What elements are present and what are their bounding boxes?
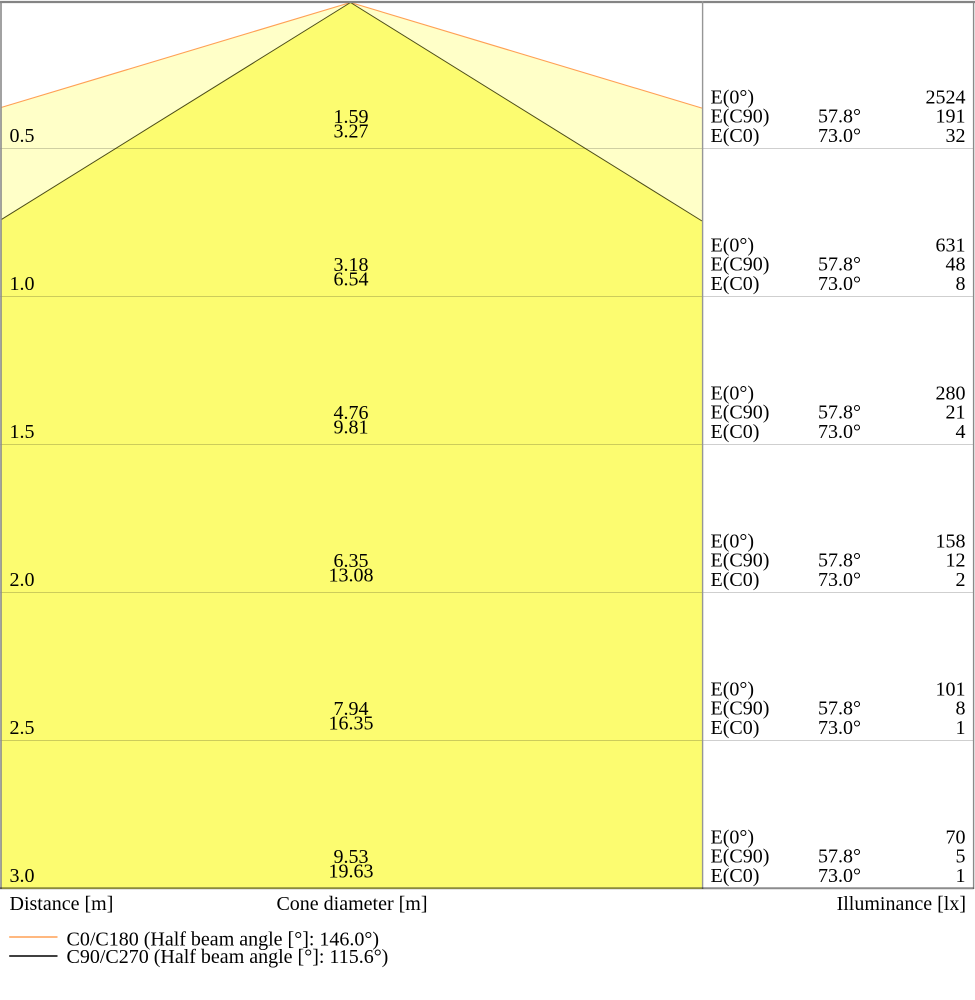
svg-text:E(C0): E(C0): [711, 569, 760, 591]
svg-text:73.0°: 73.0°: [818, 569, 861, 591]
svg-text:6.54: 6.54: [334, 269, 369, 291]
svg-text:2.5: 2.5: [10, 717, 35, 739]
svg-text:E(C0): E(C0): [711, 273, 760, 295]
svg-text:2.0: 2.0: [10, 569, 35, 591]
svg-text:E(C0): E(C0): [711, 865, 760, 887]
svg-text:16.35: 16.35: [329, 713, 374, 735]
svg-text:1: 1: [956, 717, 966, 739]
svg-text:73.0°: 73.0°: [818, 717, 861, 739]
svg-text:1: 1: [956, 865, 966, 887]
svg-text:Distance [m]: Distance [m]: [10, 893, 114, 915]
svg-text:E(C0): E(C0): [711, 125, 760, 147]
svg-text:E(C0): E(C0): [711, 717, 760, 739]
svg-text:32: 32: [946, 125, 966, 147]
svg-text:0.5: 0.5: [10, 125, 35, 147]
svg-text:73.0°: 73.0°: [818, 273, 861, 295]
svg-text:19.63: 19.63: [329, 861, 374, 883]
svg-text:9.81: 9.81: [334, 417, 369, 439]
svg-text:3.27: 3.27: [334, 121, 369, 143]
svg-text:E(C0): E(C0): [711, 421, 760, 443]
svg-text:3.0: 3.0: [10, 865, 35, 887]
svg-text:Illuminance [lx]: Illuminance [lx]: [837, 893, 966, 915]
svg-text:C90/C270 (Half beam angle [°]:: C90/C270 (Half beam angle [°]: 115.6°): [67, 946, 389, 968]
svg-text:8: 8: [956, 273, 966, 295]
svg-text:2: 2: [956, 569, 966, 591]
svg-text:73.0°: 73.0°: [818, 421, 861, 443]
svg-text:73.0°: 73.0°: [818, 865, 861, 887]
svg-text:Cone diameter [m]: Cone diameter [m]: [276, 893, 427, 915]
svg-text:4: 4: [956, 421, 966, 443]
svg-text:1.5: 1.5: [10, 421, 35, 443]
svg-text:13.08: 13.08: [329, 565, 374, 587]
svg-text:73.0°: 73.0°: [818, 125, 861, 147]
svg-text:1.0: 1.0: [10, 273, 35, 295]
